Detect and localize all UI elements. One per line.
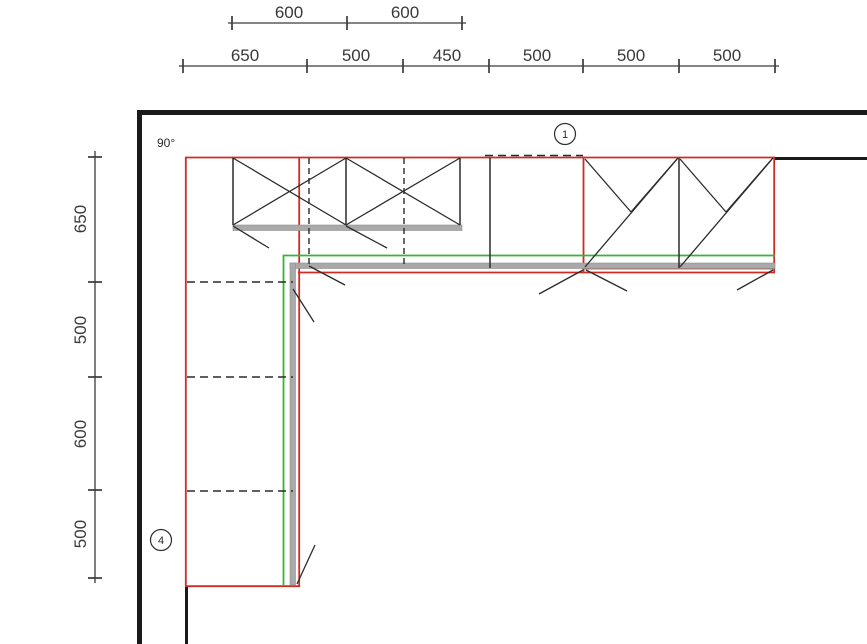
floor-plan-drawing: 600 600 650 500 450 500 500 500 650 500 … — [0, 0, 867, 644]
wall-cabinet-2[interactable] — [346, 158, 460, 225]
counter-front-vertical — [290, 263, 296, 585]
dim-label: 600 — [275, 3, 303, 22]
position-marker-4[interactable]: 4 — [151, 530, 172, 551]
marker-number[interactable]: 1 — [562, 129, 568, 141]
dim-label: 650 — [71, 205, 90, 233]
wall-cabinet-1[interactable] — [233, 158, 346, 225]
dim-label: 500 — [71, 316, 90, 344]
door-swing-marks — [233, 226, 773, 584]
cabinet-door-line[interactable] — [726, 159, 772, 212]
reference-lines-green — [283, 255, 775, 586]
swing-mark — [293, 289, 314, 322]
marker-number[interactable]: 4 — [158, 535, 164, 547]
dimension-top-upper: 600 600 — [228, 3, 466, 30]
corner-cabinet-1[interactable] — [585, 158, 678, 267]
dim-label: 500 — [523, 46, 551, 65]
hidden-dashed-lines — [187, 156, 583, 492]
dimension-top-lower: 650 500 450 500 500 500 — [179, 46, 779, 73]
position-marker-1[interactable]: 1 — [555, 124, 576, 145]
angle-label: 90° — [157, 136, 175, 150]
dim-label: 600 — [391, 3, 419, 22]
cabinet-run-outline-red — [185, 157, 775, 587]
dim-label: 600 — [71, 420, 90, 448]
dim-label: 450 — [433, 46, 461, 65]
swing-mark — [309, 266, 345, 285]
dimension-left: 650 500 600 500 — [71, 151, 102, 583]
cad-canvas: 600 600 650 500 450 500 500 500 650 500 … — [0, 0, 867, 644]
dim-label: 500 — [71, 520, 90, 548]
counter-front-horizontal — [290, 263, 775, 269]
cabinet-door-line[interactable] — [680, 159, 726, 212]
dim-label: 650 — [231, 46, 259, 65]
dim-label: 500 — [713, 46, 741, 65]
dim-label: 500 — [617, 46, 645, 65]
wall-cabinet-bottom-bar — [233, 225, 462, 231]
dim-label: 500 — [342, 46, 370, 65]
swing-mark — [539, 270, 583, 294]
run-dividers — [490, 158, 679, 268]
countertop-bars — [233, 225, 775, 585]
cabinet-door-line[interactable] — [585, 159, 631, 212]
corner-cabinet-2[interactable] — [680, 158, 773, 267]
cabinet-door-line[interactable] — [631, 159, 677, 212]
